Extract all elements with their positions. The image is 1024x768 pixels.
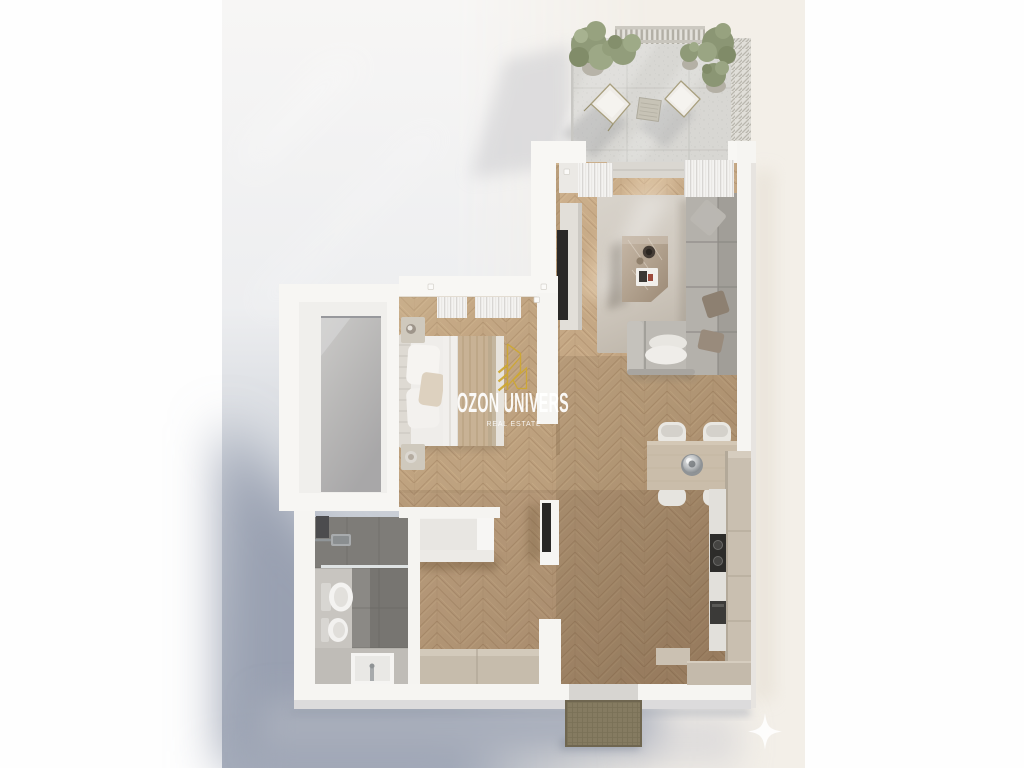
svg-text:REAL ESTATE: REAL ESTATE <box>487 421 542 428</box>
svg-text:OZON UNIVERS: OZON UNIVERS <box>457 387 569 418</box>
